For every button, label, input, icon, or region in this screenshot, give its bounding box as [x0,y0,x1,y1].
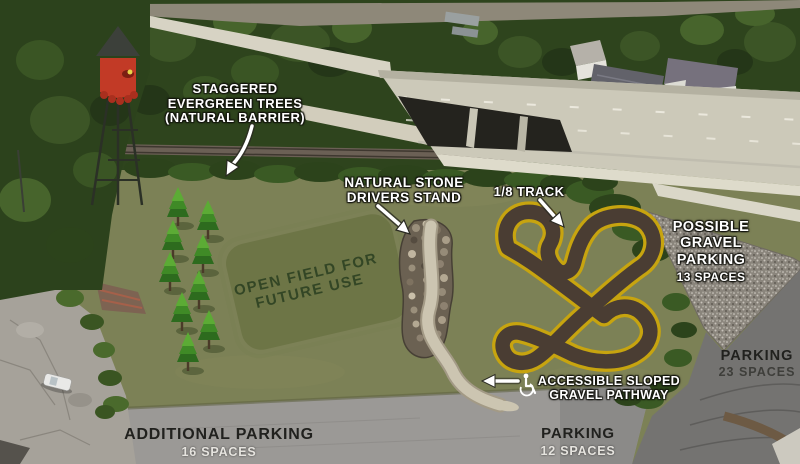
spaces-count: 12 SPACES [540,444,615,458]
label-line: GRAVEL PATHWAY [538,388,680,402]
label-parking-south: PARKING 12 SPACES [540,426,615,458]
label-parking-east: PARKING 23 SPACES [719,348,796,380]
label-additional-parking: ADDITIONAL PARKING 16 SPACES [124,426,314,459]
label-line: ACCESSIBLE SLOPED [538,374,680,388]
label-line: PARKING [719,348,796,364]
label-line: (NATURAL BARRIER) [165,111,305,126]
label-line: POSSIBLE [673,219,750,235]
label-line: DRIVERS STAND [344,190,463,205]
label-line: PARKING [540,426,615,443]
label-track: 1/8 TRACK [494,185,565,200]
label-line: 1/8 TRACK [494,185,565,200]
label-line: NATURAL STONE [344,175,463,190]
label-pathway: ACCESSIBLE SLOPED GRAVEL PATHWAY [538,374,680,402]
label-evergreen-trees: STAGGERED EVERGREEN TREES (NATURAL BARRI… [165,82,305,126]
site-plan-image: STAGGERED EVERGREEN TREES (NATURAL BARRI… [0,0,800,464]
spaces-count: 23 SPACES [719,365,796,379]
label-drivers-stand: NATURAL STONE DRIVERS STAND [344,175,463,206]
spaces-count: 16 SPACES [124,445,314,459]
label-line: GRAVEL [673,235,750,251]
spaces-count: 13 SPACES [673,271,750,285]
label-line: PARKING [673,252,750,268]
label-line: STAGGERED [165,82,305,97]
label-gravel-parking: POSSIBLE GRAVEL PARKING 13 SPACES [673,219,750,285]
label-line: ADDITIONAL PARKING [124,426,314,444]
